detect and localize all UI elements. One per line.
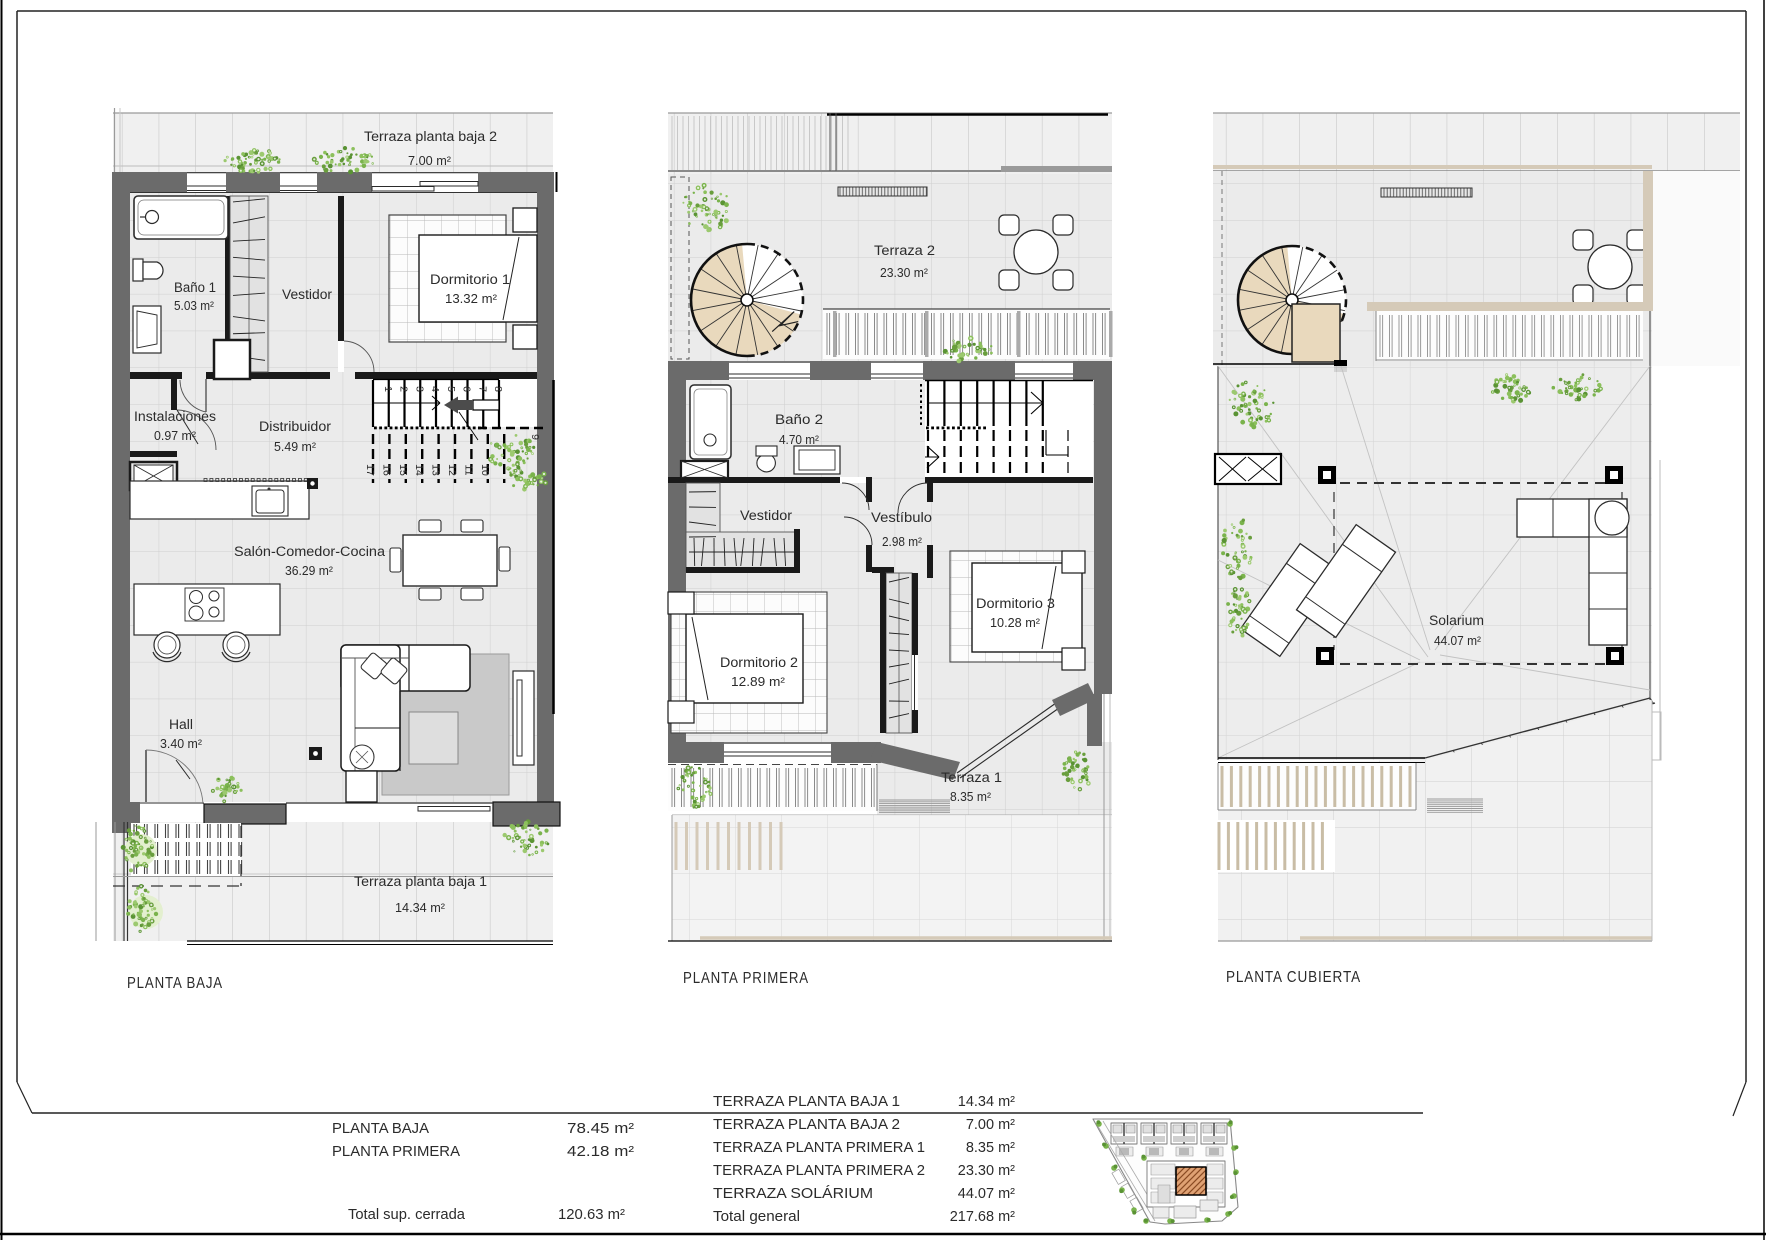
svg-text:14.34 m²: 14.34 m² [395, 900, 446, 915]
svg-text:217.68 m²: 217.68 m² [950, 1209, 1015, 1225]
svg-text:7: 7 [476, 386, 488, 392]
svg-text:Dormitorio 2: Dormitorio 2 [720, 655, 798, 670]
svg-text:44.07 m²: 44.07 m² [1434, 634, 1481, 648]
svg-text:14.34 m²: 14.34 m² [958, 1094, 1015, 1110]
svg-text:8.35 m²: 8.35 m² [950, 790, 991, 804]
svg-text:PLANTA BAJA: PLANTA BAJA [127, 975, 223, 992]
svg-text:13.32 m²: 13.32 m² [445, 292, 497, 306]
svg-text:Baño 1: Baño 1 [174, 280, 216, 295]
svg-text:14: 14 [413, 464, 425, 476]
svg-text:Vestíbulo: Vestíbulo [871, 510, 932, 525]
svg-text:Dormitorio 3: Dormitorio 3 [976, 596, 1055, 611]
svg-text:2.98 m²: 2.98 m² [882, 535, 922, 549]
svg-text:1: 1 [382, 386, 394, 392]
svg-text:23.30 m²: 23.30 m² [958, 1163, 1015, 1179]
svg-text:PLANTA PRIMERA: PLANTA PRIMERA [332, 1144, 460, 1160]
svg-text:7.00 m²: 7.00 m² [966, 1117, 1015, 1133]
svg-text:Solarium: Solarium [1429, 613, 1484, 628]
svg-text:5: 5 [445, 386, 457, 392]
svg-text:6: 6 [461, 386, 473, 392]
svg-text:Terraza planta baja 2: Terraza planta baja 2 [364, 129, 497, 144]
svg-text:11: 11 [462, 465, 474, 476]
svg-text:TERRAZA PLANTA BAJA 2: TERRAZA PLANTA BAJA 2 [713, 1117, 900, 1133]
svg-text:TERRAZA SOLÁRIUM: TERRAZA SOLÁRIUM [713, 1185, 873, 1202]
svg-text:4.70 m²: 4.70 m² [779, 433, 819, 447]
svg-text:TERRAZA PLANTA BAJA 1: TERRAZA PLANTA BAJA 1 [713, 1094, 900, 1110]
svg-text:Dormitorio 1: Dormitorio 1 [430, 272, 510, 287]
svg-text:Salón-Comedor-Cocina: Salón-Comedor-Cocina [234, 544, 386, 559]
svg-text:10: 10 [479, 464, 491, 476]
svg-text:12: 12 [446, 464, 458, 476]
svg-text:13: 13 [430, 464, 442, 476]
svg-text:120.63 m²: 120.63 m² [558, 1207, 625, 1223]
svg-text:8.35 m²: 8.35 m² [966, 1140, 1015, 1156]
svg-text:7.00 m²: 7.00 m² [408, 153, 452, 168]
svg-text:Instalaciones: Instalaciones [134, 409, 216, 424]
svg-text:5.03 m²: 5.03 m² [174, 299, 214, 313]
svg-text:15: 15 [397, 464, 409, 476]
svg-text:2: 2 [398, 386, 410, 392]
svg-text:Total sup. cerrada: Total sup. cerrada [348, 1207, 466, 1223]
svg-text:Baño 2: Baño 2 [775, 412, 823, 427]
svg-text:36.29 m²: 36.29 m² [285, 564, 333, 578]
svg-text:5.49 m²: 5.49 m² [274, 440, 316, 454]
svg-text:12.89 m²: 12.89 m² [731, 675, 785, 689]
svg-text:10.28 m²: 10.28 m² [990, 616, 1040, 630]
svg-text:TERRAZA PLANTA PRIMERA 2: TERRAZA PLANTA PRIMERA 2 [713, 1163, 925, 1179]
svg-text:3.40 m²: 3.40 m² [160, 737, 202, 751]
svg-text:17: 17 [364, 464, 376, 476]
svg-text:3: 3 [413, 386, 425, 392]
svg-text:PLANTA CUBIERTA: PLANTA CUBIERTA [1226, 969, 1361, 986]
svg-text:PLANTA PRIMERA: PLANTA PRIMERA [683, 970, 809, 987]
svg-text:42.18 m²: 42.18 m² [567, 1144, 634, 1160]
svg-text:PLANTA BAJA: PLANTA BAJA [332, 1121, 429, 1137]
svg-text:44.07 m²: 44.07 m² [958, 1186, 1015, 1202]
svg-text:Terraza planta baja 1: Terraza planta baja 1 [354, 874, 487, 889]
svg-text:TERRAZA PLANTA PRIMERA 1: TERRAZA PLANTA PRIMERA 1 [713, 1140, 925, 1156]
svg-text:Vestidor: Vestidor [740, 508, 793, 523]
svg-text:Vestidor: Vestidor [282, 287, 333, 302]
svg-text:Total general: Total general [713, 1209, 800, 1225]
svg-text:16: 16 [380, 464, 392, 476]
svg-text:0.97 m²: 0.97 m² [154, 429, 196, 443]
svg-text:4: 4 [429, 386, 441, 392]
svg-text:9: 9 [529, 434, 541, 440]
svg-text:Terraza 1: Terraza 1 [941, 770, 1002, 785]
svg-text:78.45 m²: 78.45 m² [567, 1121, 634, 1137]
svg-text:8: 8 [492, 386, 504, 392]
svg-text:Hall: Hall [169, 717, 193, 732]
svg-text:Terraza 2: Terraza 2 [874, 243, 935, 258]
svg-text:Distribuidor: Distribuidor [259, 419, 332, 434]
svg-text:23.30 m²: 23.30 m² [880, 266, 928, 280]
